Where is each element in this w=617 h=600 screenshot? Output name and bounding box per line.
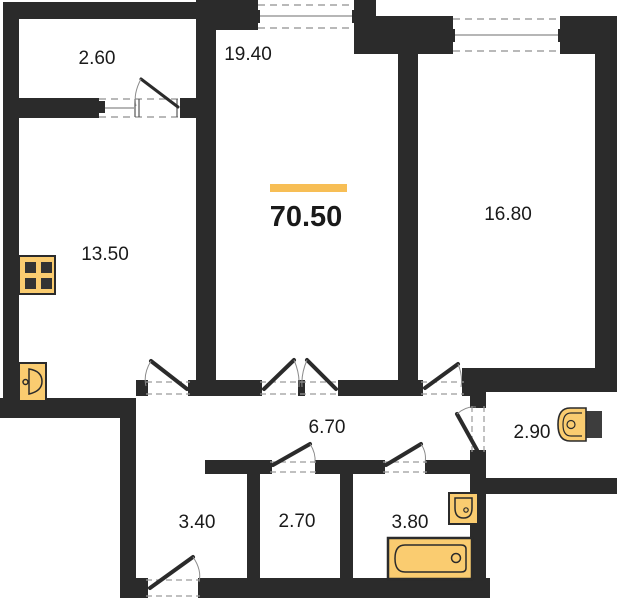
kitchen-door-icon [145, 361, 190, 394]
floor-plan: 70.50 2.60 19.40 16.80 13.50 6.70 2.90 3… [0, 0, 617, 600]
bathroom-door-icon [383, 444, 427, 472]
bedroom-window-icon [447, 19, 566, 51]
walls [0, 0, 617, 598]
wc-door-icon [457, 406, 484, 452]
bathroom-sink-icon [449, 493, 478, 524]
room-label-corridor: 6.70 [309, 417, 346, 438]
entrance-door-icon [146, 557, 200, 596]
living-room-window-icon [252, 5, 360, 28]
room-label-hallway: 3.40 [179, 512, 216, 533]
stove-icon [19, 256, 55, 294]
total-area-underline [270, 184, 347, 192]
room-label-storage: 2.70 [279, 511, 316, 532]
room-label-bedroom: 16.80 [484, 204, 532, 225]
windows [97, 5, 566, 117]
storage-door-icon [270, 444, 317, 472]
bedroom-door-icon [421, 364, 464, 394]
room-label-kitchen: 13.50 [81, 244, 129, 265]
room-label-balcony: 2.60 [79, 48, 116, 69]
total-area-label: 70.50 [270, 201, 343, 233]
room-label-living-room: 19.40 [224, 44, 272, 65]
room-label-bathroom: 3.80 [392, 512, 429, 533]
toilet-icon [558, 408, 602, 441]
balcony-door-window-icon [97, 79, 180, 117]
kitchen-sink-icon [19, 363, 46, 401]
floor-plan-canvas: 70.50 2.60 19.40 16.80 13.50 6.70 2.90 3… [0, 0, 617, 600]
room-label-wc: 2.90 [514, 422, 551, 443]
bathtub-icon [388, 538, 472, 579]
